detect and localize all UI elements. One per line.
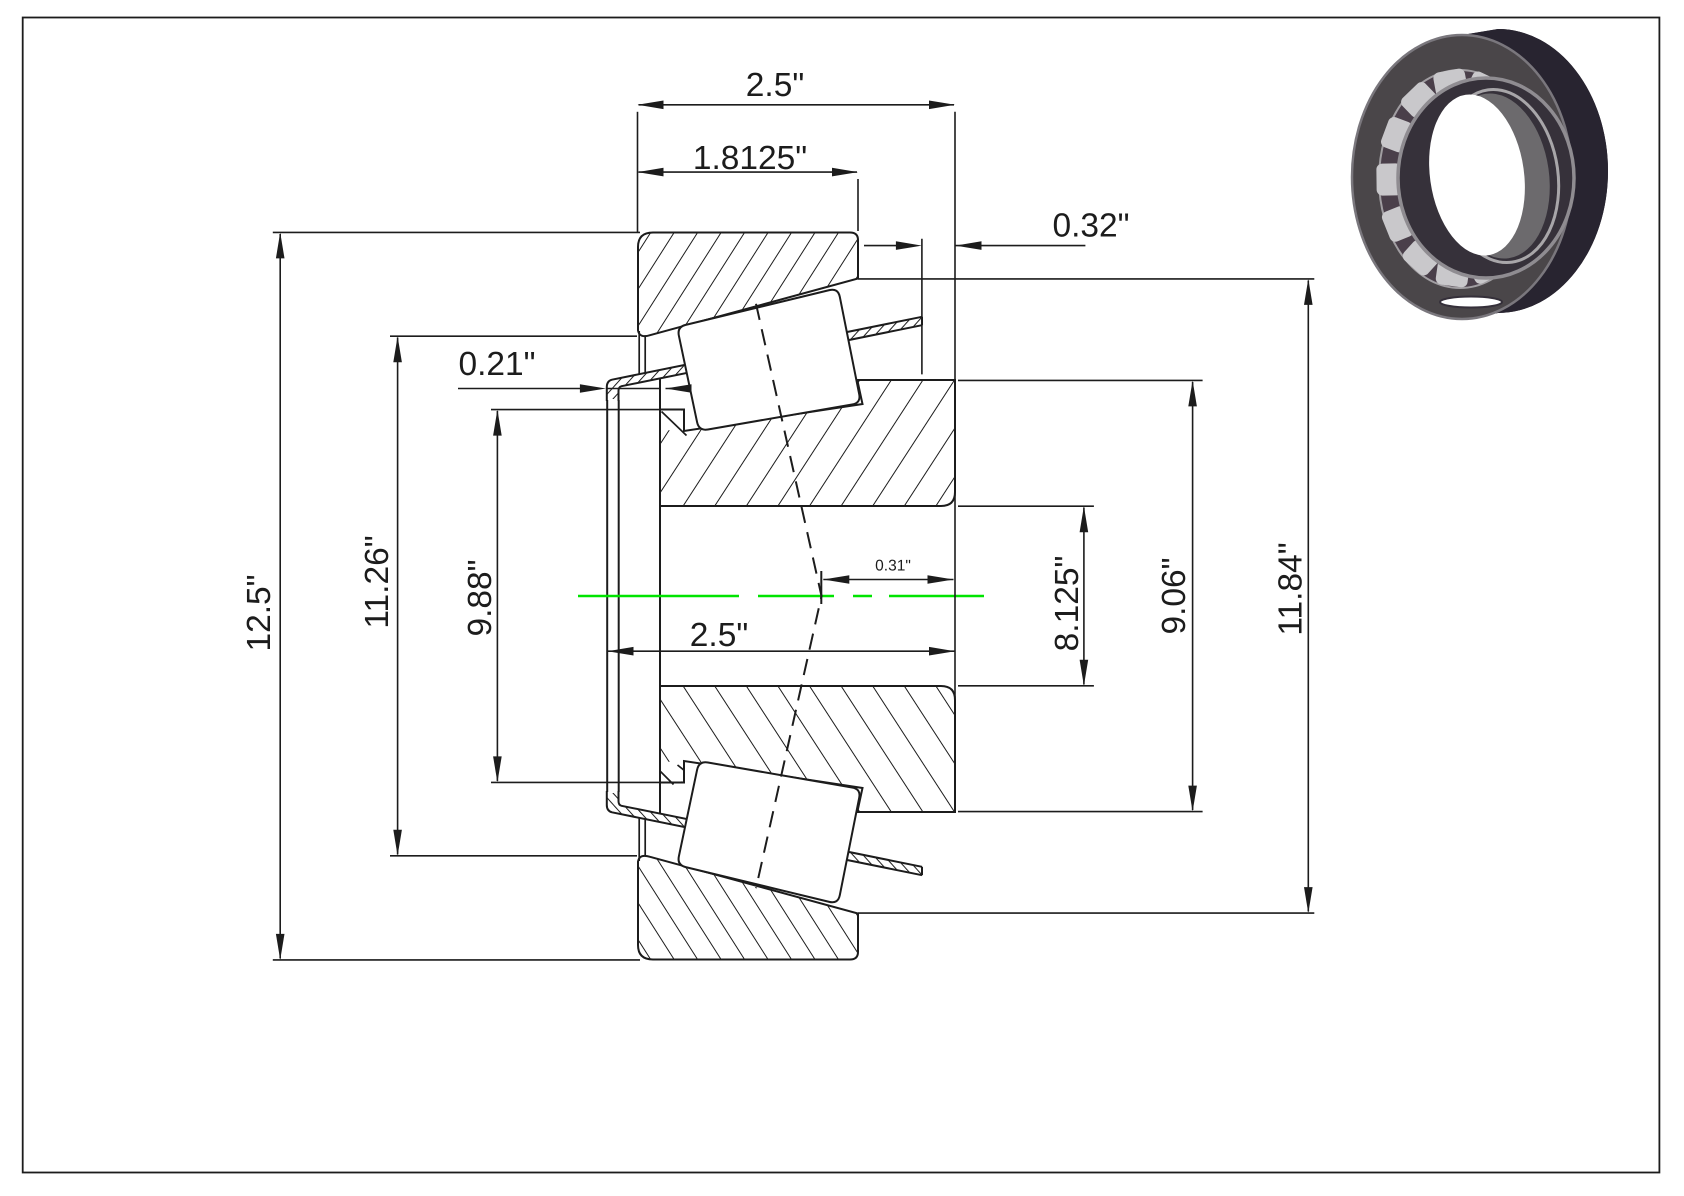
svg-text:11.84": 11.84" — [1273, 542, 1310, 635]
svg-text:9.88": 9.88" — [462, 559, 499, 636]
svg-text:0.21": 0.21" — [458, 346, 535, 383]
svg-text:9.06": 9.06" — [1156, 557, 1193, 634]
svg-text:11.26": 11.26" — [359, 535, 396, 628]
svg-text:0.32": 0.32" — [1052, 208, 1129, 245]
svg-text:2.5": 2.5" — [690, 617, 748, 654]
svg-text:8.125": 8.125" — [1049, 556, 1086, 652]
svg-text:2.5": 2.5" — [746, 67, 804, 104]
svg-text:12.5": 12.5" — [241, 574, 278, 651]
svg-text:0.31": 0.31" — [875, 558, 911, 575]
svg-text:1.8125": 1.8125" — [693, 140, 807, 177]
